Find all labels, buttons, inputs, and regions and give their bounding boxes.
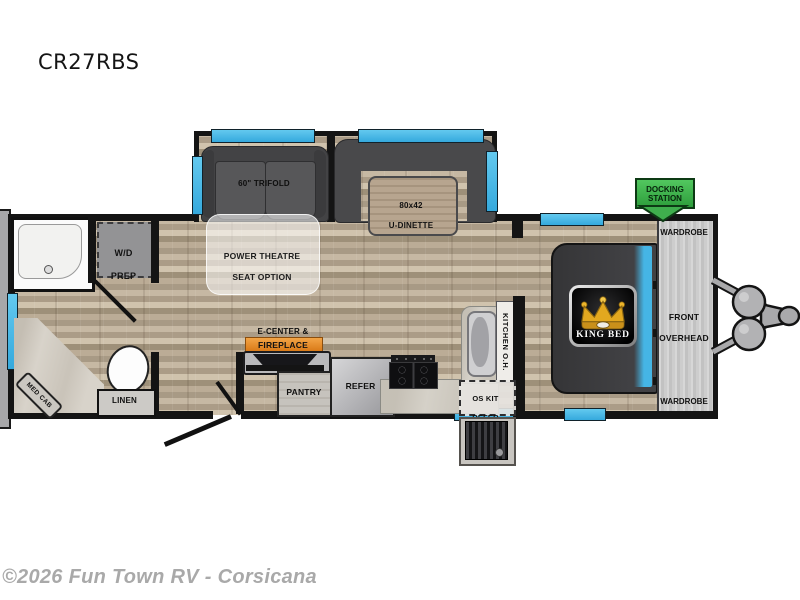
- power-theatre-line2: SEAT OPTION: [232, 272, 291, 282]
- propane-tank-2: [733, 318, 765, 350]
- ecenter-label: E-CENTER &: [244, 327, 322, 337]
- wd-prep-label: W/D PREP: [97, 237, 150, 282]
- front-overhead-line1: FRONT: [669, 312, 699, 322]
- propane-tank-1: [733, 286, 765, 318]
- dinette-top-window: [358, 129, 484, 143]
- wardrobe-bottom-label: WARDROBE: [657, 397, 711, 407]
- front-overhead-line2: OVERHEAD: [659, 333, 709, 343]
- range-cooktop: [389, 362, 438, 389]
- bedroom-bottom-window: [564, 408, 606, 421]
- os-kit-line1: OS KIT: [472, 394, 498, 403]
- trifold-top-window: [211, 129, 315, 143]
- docking-line2: STATION: [648, 194, 682, 203]
- page-title: CR27RBS: [38, 50, 139, 74]
- wardrobe-top-label: WARDROBE: [657, 228, 711, 238]
- dinette-label-line1: 80x42: [399, 201, 422, 210]
- wd-prep-line1: W/D: [114, 248, 132, 258]
- dinette-side-window: [486, 151, 498, 212]
- kitchen-oh-label: KITCHEN O.H.: [501, 313, 510, 371]
- outside-kitchen-knob: [495, 448, 504, 457]
- power-theatre-label: POWER THEATRE SEAT OPTION: [206, 240, 318, 283]
- shower-right-wall: [88, 217, 96, 283]
- docking-line1: DOCKING: [646, 185, 684, 194]
- trifold-side-window: [192, 156, 203, 215]
- sofa-cushion-left: [215, 161, 266, 220]
- fireplace-label: FIREPLACE: [245, 340, 321, 351]
- dinette-label: 80x42 U-DINETTE: [368, 191, 454, 231]
- bedroom-wall-stub: [512, 218, 523, 238]
- linen-label: LINEN: [97, 396, 152, 406]
- sink-basin: [471, 317, 489, 367]
- docking-arrow-icon: [634, 205, 692, 223]
- watermark: ©2026 Fun Town RV - Corsicana: [2, 566, 317, 589]
- king-bed-label: KING BED: [576, 330, 630, 340]
- floorplan: CR27RBS 60" TRIFOLD 80x42 U-DINETTE: [0, 0, 800, 600]
- power-theatre-line1: POWER THEATRE: [224, 251, 301, 261]
- bedroom-top-window: [540, 213, 604, 226]
- king-bed-badge-inner: KING BED: [572, 288, 634, 344]
- pantry-label: PANTRY: [277, 387, 331, 398]
- sofa-cushion-right: [265, 161, 316, 220]
- king-bed-badge: KING BED: [569, 285, 637, 347]
- wd-prep-line2: PREP: [111, 271, 136, 281]
- hitch-tongue: [711, 260, 800, 360]
- front-overhead-label: FRONT OVERHEAD: [657, 301, 711, 344]
- dinette-label-line2: U-DINETTE: [389, 221, 433, 230]
- shower-drain: [44, 265, 53, 274]
- crown-icon: [577, 296, 629, 332]
- bath-wall-upper: [151, 217, 159, 283]
- entry-door-outer: [164, 414, 232, 447]
- trifold-label: 60" TRIFOLD: [210, 179, 318, 189]
